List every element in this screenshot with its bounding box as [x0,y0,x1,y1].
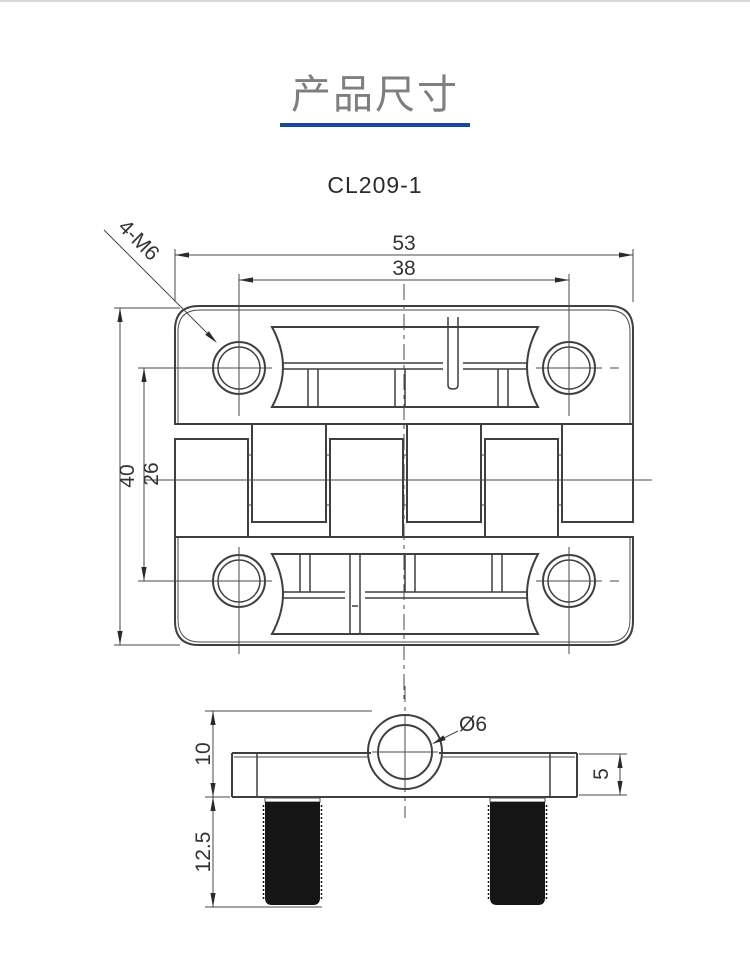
dim-text-10: 10 [192,742,215,765]
dim-text-26: 26 [140,462,163,485]
bottom-slot [272,554,538,634]
mounting-holes [138,274,619,654]
stud-left [265,802,320,905]
dimension-drawing: 53 38 40 26 [0,2,750,971]
stud-right [490,802,545,905]
side-knuckle [368,686,442,818]
dim-text-53: 53 [392,232,415,255]
thread-callout: 4-M6 [104,215,217,343]
dim-text-12-5: 12.5 [192,832,215,873]
plan-view: 53 38 40 26 [104,215,652,702]
dim-leaf-thickness: 5 [579,754,627,795]
top-slot [272,317,538,407]
dim-text-38: 38 [392,257,415,280]
side-view: 10 12.5 5 Ø6 [192,686,627,907]
dim-text-40: 40 [116,464,139,487]
dim-text-5: 5 [590,768,613,780]
pin-dia-callout: Ø6 [432,713,487,744]
page: 产品尺寸 CL209-1 [0,0,750,971]
dim-hole-pitch-h: 38 [239,257,569,283]
dim-text-4m6: 4-M6 [114,215,164,265]
dim-hole-pitch-v: 26 [140,368,163,581]
dim-text-dia6: Ø6 [459,713,487,736]
